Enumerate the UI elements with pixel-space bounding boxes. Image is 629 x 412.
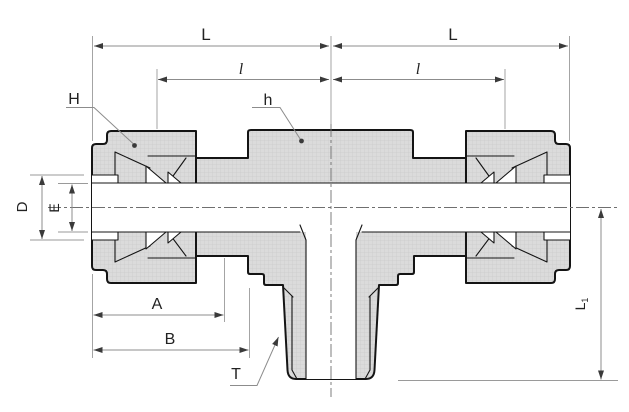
label-dim-b: B xyxy=(165,331,176,348)
label-branch-length-sub: 1 xyxy=(580,298,590,303)
label-branch-length-main: L xyxy=(572,302,588,310)
fitting-technical-drawing: L L l l H h D E A B T L1 xyxy=(0,0,629,412)
label-body-hex: h xyxy=(264,92,273,109)
label-length-left: L xyxy=(201,25,210,44)
label-ferrule-length-left: l xyxy=(239,61,244,78)
tee-fitting-drawing-canvas: L L l l H h D E A B T L1 xyxy=(0,0,629,412)
label-length-right: L xyxy=(448,25,457,44)
label-branch-length: L1 xyxy=(572,298,590,311)
label-thread: T xyxy=(231,366,241,383)
label-dim-a: A xyxy=(152,296,163,313)
label-nut-hex: H xyxy=(68,91,80,108)
label-hole-dia: D xyxy=(14,201,31,212)
label-bore-dia: E xyxy=(46,203,62,212)
leader-h-dot xyxy=(299,139,304,144)
label-ferrule-length-right: l xyxy=(416,61,421,78)
leader-H-dot xyxy=(132,143,137,148)
